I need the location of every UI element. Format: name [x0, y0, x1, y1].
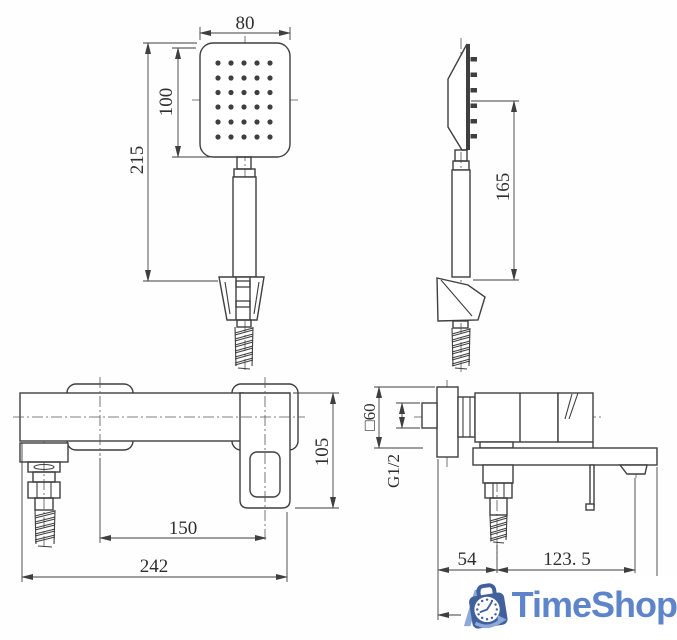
- spray-nozzles: [471, 57, 478, 139]
- shower-handle: [233, 177, 256, 277]
- mixer-hose-side: [490, 515, 507, 543]
- handle-lower-edge: [590, 465, 594, 506]
- shower-handle-side: [452, 170, 470, 277]
- shower-hose: [235, 327, 253, 369]
- shower-neck: [237, 157, 251, 169]
- hand-shower-front-view: [192, 36, 298, 372]
- dim-holder-height-165: 165: [493, 173, 514, 202]
- mixer-front-view: [13, 377, 305, 550]
- dim-total-height-215: 215: [127, 146, 148, 175]
- timeshop-logo: TimeShop: [461, 576, 677, 640]
- shower-head-side: [448, 44, 467, 150]
- mixer-side-view: [414, 380, 657, 560]
- hose-outlet-side: [483, 465, 513, 483]
- timeshop-logo-text: TimeShop: [512, 587, 677, 629]
- dim-body-height-105: 105: [312, 438, 333, 467]
- mixer-body-side: [475, 393, 558, 442]
- wall-plate-side: [437, 387, 458, 457]
- technical-drawing: 80 100 215 165: [0, 0, 677, 640]
- hand-shower-side-dimensions: 165: [471, 101, 519, 280]
- spout-deck: [473, 448, 657, 465]
- hand-shower-side-view: [437, 38, 485, 372]
- shower-head: [200, 43, 290, 157]
- technical-drawing-page: 80 100 215 165: [0, 0, 677, 640]
- dim-hose-to-spout-123-5: 123. 5: [543, 549, 591, 570]
- wall-connection: [422, 403, 437, 428]
- dim-total-width-242: 242: [140, 556, 169, 577]
- dim-thread-g12: G1/2: [384, 454, 403, 488]
- dim-wall-to-hose-54: 54: [458, 549, 478, 570]
- dim-escutcheon-60: □60: [360, 403, 379, 430]
- spout-tip: [620, 465, 647, 474]
- coupling-nut: [458, 397, 475, 437]
- dim-head-height-100: 100: [156, 88, 177, 117]
- dim-hole-distance-150: 150: [169, 518, 198, 539]
- mixer-hose-front: [35, 510, 55, 547]
- timeshop-clock-bag-icon: [461, 577, 512, 639]
- hose-nut-side: [485, 483, 512, 498]
- dim-width-80: 80: [236, 13, 255, 34]
- hose-outlet-block: [20, 443, 68, 462]
